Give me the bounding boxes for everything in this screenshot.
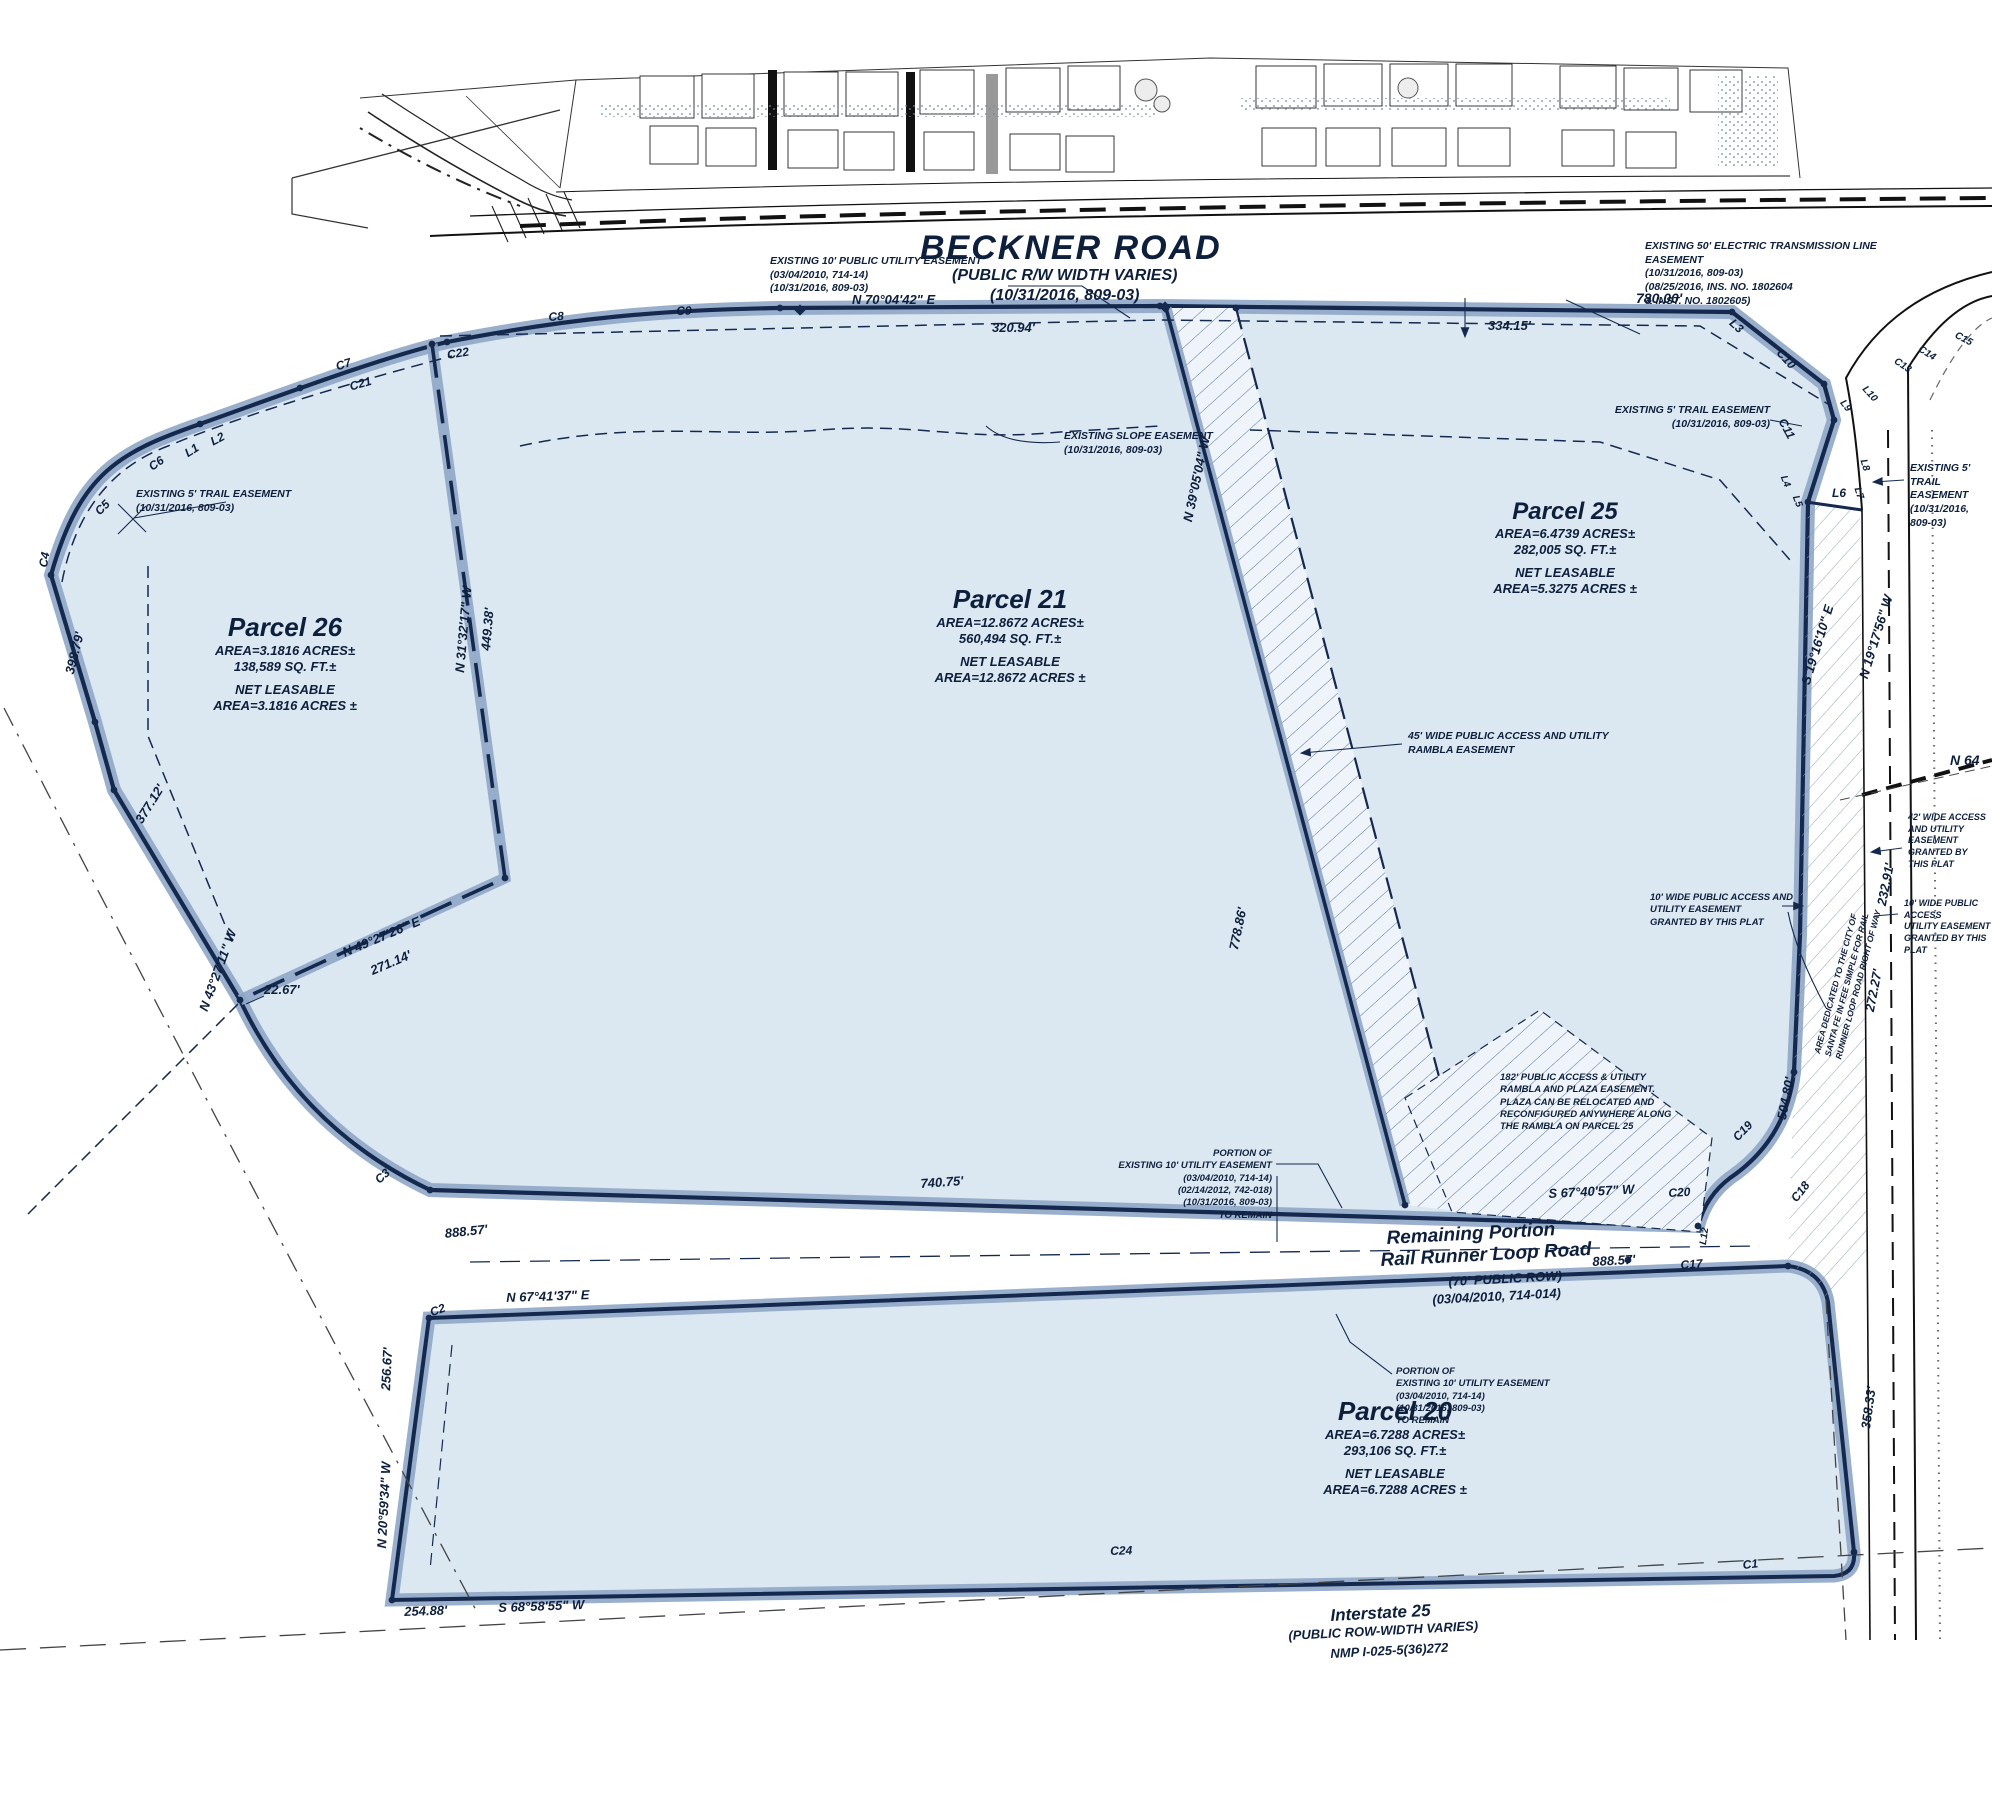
parcel-26-net-area: AREA=3.1816 ACRES ± bbox=[160, 698, 410, 714]
note-access-42: 42' WIDE ACCESS AND UTILITY EASEMENT GRA… bbox=[1908, 812, 1986, 870]
parcel-21-net-area: AREA=12.8672 ACRES ± bbox=[880, 670, 1140, 686]
dist-320-94: 320.94' bbox=[992, 320, 1035, 336]
parcel-20-area: AREA=6.7288 ACRES± bbox=[1270, 1427, 1520, 1443]
parcel-26-area: AREA=3.1816 ACRES± bbox=[160, 643, 410, 659]
curve-c8: C8 bbox=[548, 309, 564, 324]
parcel-26-sqft: 138,589 SQ. FT.± bbox=[160, 659, 410, 675]
line-l12: L12 bbox=[1698, 1227, 1712, 1246]
note-portion-upper: PORTION OF EXISTING 10' UTILITY EASEMENT… bbox=[1108, 1148, 1272, 1222]
parcel-26-net-label: NET LEASABLE bbox=[160, 682, 410, 698]
note-slope-easement: EXISTING SLOPE EASEMENT (10/31/2016, 809… bbox=[1064, 430, 1213, 457]
dist-256-67: 256.67' bbox=[378, 1347, 396, 1391]
note-top-utility-easement: EXISTING 10' PUBLIC UTILITY EASEMENT (03… bbox=[770, 255, 982, 296]
plat-drawing: BECKNER ROAD (PUBLIC R/W WIDTH VARIES) (… bbox=[0, 0, 1992, 1804]
beckner-road-sub2: (10/31/2016, 809-03) bbox=[990, 286, 1139, 305]
parcel-25-sqft: 282,005 SQ. FT.± bbox=[1440, 542, 1690, 558]
parcel-25-net-label: NET LEASABLE bbox=[1440, 565, 1690, 581]
parcel-26-title: Parcel 26 bbox=[160, 612, 410, 643]
note-access-10-right: 10' WIDE PUBLIC ACCESS UTILITY EASEMENT … bbox=[1904, 898, 1992, 956]
note-trail-easement-left: EXISTING 5' TRAIL EASEMENT (10/31/2016, … bbox=[136, 488, 291, 515]
note-portion-lower: PORTION OF EXISTING 10' UTILITY EASEMENT… bbox=[1396, 1366, 1550, 1428]
bearing-n700442: N 70°04'42" E bbox=[852, 292, 935, 308]
note-plaza-182: 182' PUBLIC ACCESS & UTILITY RAMBLA AND … bbox=[1500, 1072, 1671, 1134]
parcel-25-title: Parcel 25 bbox=[1440, 498, 1690, 526]
parcel-25-area: AREA=6.4739 ACRES± bbox=[1440, 526, 1690, 542]
dist-334-15: 334.15' bbox=[1488, 318, 1531, 334]
curve-c24: C24 bbox=[1110, 1543, 1133, 1558]
beckner-road-sub1: (PUBLIC R/W WIDTH VARIES) bbox=[952, 266, 1177, 285]
dist-740-75: 740.75' bbox=[920, 1173, 964, 1192]
note-trail-easement-right-top: EXISTING 5' TRAIL EASEMENT (10/31/2016, … bbox=[1608, 404, 1770, 431]
bearing-s685855: S 68°58'55" W bbox=[498, 1597, 584, 1616]
parcel-21-title: Parcel 21 bbox=[880, 584, 1140, 615]
note-rambla-45: 45' WIDE PUBLIC ACCESS AND UTILITY RAMBL… bbox=[1408, 730, 1609, 757]
curve-c1: C1 bbox=[1742, 1556, 1759, 1572]
bearing-n674137: N 67°41'37" E bbox=[506, 1287, 590, 1305]
curve-c17: C17 bbox=[1680, 1256, 1703, 1272]
dist-780-00: 780.00' bbox=[1636, 290, 1682, 307]
parcel-21-sqft: 560,494 SQ. FT.± bbox=[880, 631, 1140, 647]
curve-c4: C4 bbox=[36, 551, 53, 569]
dist-888-57-right: 888.57' bbox=[1592, 1252, 1636, 1270]
parcel-21-area: AREA=12.8672 ACRES± bbox=[880, 615, 1140, 631]
curve-c9: C9 bbox=[676, 303, 692, 318]
parcel-25-block: Parcel 25 AREA=6.4739 ACRES± 282,005 SQ.… bbox=[1440, 498, 1690, 597]
note-access-10-left: 10' WIDE PUBLIC ACCESS AND UTILITY EASEM… bbox=[1650, 892, 1793, 929]
line-l6: L6 bbox=[1832, 486, 1846, 500]
parcel-21-net-label: NET LEASABLE bbox=[880, 654, 1140, 670]
parcel-20-net-label: NET LEASABLE bbox=[1270, 1466, 1520, 1482]
note-trail-easement-right-side: EXISTING 5' TRAIL EASEMENT (10/31/2016, … bbox=[1910, 462, 1970, 530]
bearing-n64-partial: N 64 bbox=[1950, 752, 1980, 769]
parcel-25-net-area: AREA=5.3275 ACRES ± bbox=[1440, 581, 1690, 597]
dist-22-67: 22.67' bbox=[264, 982, 300, 998]
parcel-21-block: Parcel 21 AREA=12.8672 ACRES± 560,494 SQ… bbox=[880, 584, 1140, 686]
dist-254-88: 254.88' bbox=[404, 1603, 447, 1620]
parcel-20-net-area: AREA=6.7288 ACRES ± bbox=[1270, 1482, 1520, 1498]
curve-c20: C20 bbox=[1668, 1185, 1691, 1201]
parcel-26-block: Parcel 26 AREA=3.1816 ACRES± 138,589 SQ.… bbox=[160, 612, 410, 714]
parcel-20-sqft: 293,106 SQ. FT.± bbox=[1270, 1443, 1520, 1459]
